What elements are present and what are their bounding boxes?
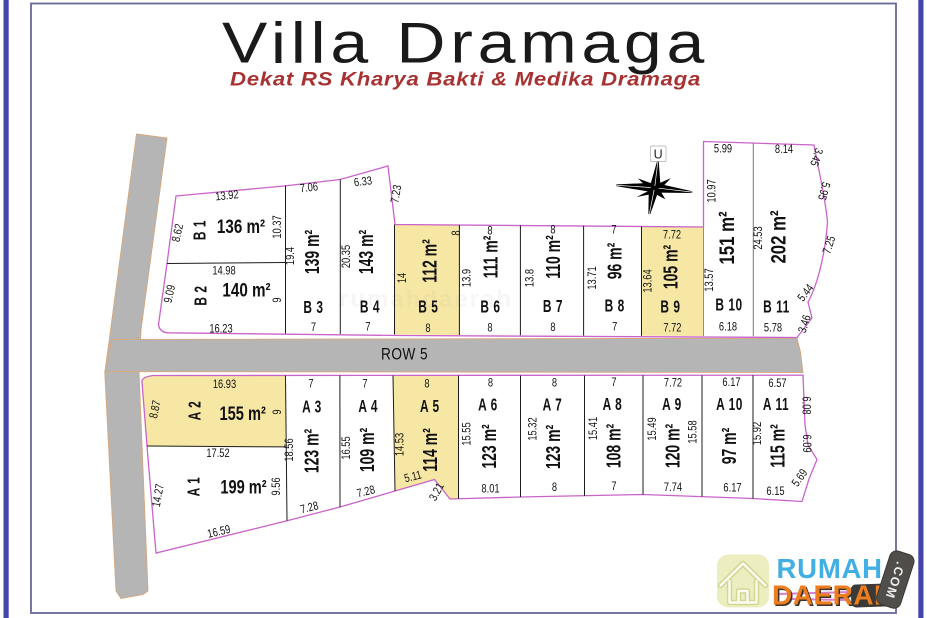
svg-text:136 m²: 136 m² <box>217 215 265 237</box>
svg-text:10.97: 10.97 <box>705 179 718 202</box>
svg-text:7: 7 <box>612 320 617 333</box>
svg-text:14.53: 14.53 <box>394 433 407 456</box>
svg-text:18.56: 18.56 <box>283 438 296 461</box>
svg-text:A 6: A 6 <box>478 395 498 415</box>
svg-text:6.18: 6.18 <box>719 320 737 333</box>
svg-text:A 8: A 8 <box>603 395 623 415</box>
svg-text:109 m²: 109 m² <box>355 428 378 473</box>
svg-text:ROW 5: ROW 5 <box>381 345 428 363</box>
svg-text:202 m²: 202 m² <box>768 210 791 264</box>
svg-text:97 m²: 97 m² <box>717 428 740 465</box>
svg-text:140 m²: 140 m² <box>222 279 270 301</box>
svg-text:13.71: 13.71 <box>586 266 599 289</box>
svg-text:14.98: 14.98 <box>212 264 235 277</box>
svg-text:8: 8 <box>487 321 492 334</box>
svg-text:24.53: 24.53 <box>752 226 765 249</box>
svg-text:7.72: 7.72 <box>663 228 681 241</box>
svg-text:B 8: B 8 <box>605 296 625 316</box>
svg-text:A 7: A 7 <box>543 395 563 415</box>
svg-text:123 m²: 123 m² <box>541 425 564 470</box>
svg-text:B 7: B 7 <box>543 297 563 317</box>
svg-text:B 5: B 5 <box>418 297 438 317</box>
svg-text:16.55: 16.55 <box>340 436 353 459</box>
svg-text:13.64: 13.64 <box>641 269 654 292</box>
svg-text:13.8: 13.8 <box>523 269 536 287</box>
svg-text:6.17: 6.17 <box>722 376 740 389</box>
svg-text:105 m²: 105 m² <box>659 245 682 290</box>
svg-text:B 6: B 6 <box>480 297 500 317</box>
svg-text:7: 7 <box>362 377 367 390</box>
svg-text:8.01: 8.01 <box>481 482 499 495</box>
svg-text:15.92: 15.92 <box>751 422 764 445</box>
svg-text:8: 8 <box>552 481 557 494</box>
svg-text:19.4: 19.4 <box>284 247 297 265</box>
svg-text:DAERAH: DAERAH <box>772 580 895 611</box>
svg-text:8: 8 <box>424 377 429 390</box>
svg-text:B 4: B 4 <box>360 297 380 317</box>
svg-text:A 11: A 11 <box>763 395 789 415</box>
svg-text:U: U <box>654 147 663 161</box>
svg-text:16.23: 16.23 <box>209 322 232 335</box>
svg-text:7.72: 7.72 <box>664 376 682 389</box>
svg-text:7: 7 <box>611 480 616 493</box>
svg-text:15.32: 15.32 <box>526 417 539 440</box>
svg-text:10.37: 10.37 <box>271 215 284 238</box>
svg-text:7.06: 7.06 <box>299 180 319 195</box>
svg-text:6.15: 6.15 <box>766 485 784 498</box>
svg-text:110 m²: 110 m² <box>541 235 564 279</box>
svg-text:A 4: A 4 <box>358 397 378 417</box>
svg-text:9.56: 9.56 <box>270 477 283 495</box>
svg-text:123 m²: 123 m² <box>477 424 500 469</box>
svg-text:14: 14 <box>396 273 409 283</box>
svg-text:B 2: B 2 <box>191 285 211 305</box>
svg-text:120 m²: 120 m² <box>661 424 684 469</box>
svg-text:112 m²: 112 m² <box>418 239 441 283</box>
svg-text:15.55: 15.55 <box>460 422 473 445</box>
svg-text:9: 9 <box>271 409 284 414</box>
svg-text:A 3: A 3 <box>302 397 322 417</box>
svg-text:6.08: 6.08 <box>799 396 812 414</box>
svg-text:7: 7 <box>611 376 616 389</box>
svg-text:123 m²: 123 m² <box>300 429 323 474</box>
svg-text:8: 8 <box>425 322 430 335</box>
svg-text:155 m²: 155 m² <box>220 402 267 425</box>
svg-text:15.58: 15.58 <box>686 420 699 443</box>
svg-text:Dekat RS Kharya Bakti & Medika: Dekat RS Kharya Bakti & Medika Dramaga <box>230 69 701 90</box>
svg-text:20.35: 20.35 <box>340 245 353 268</box>
svg-text:B 3: B 3 <box>303 298 323 318</box>
svg-text:8.14: 8.14 <box>775 143 793 156</box>
svg-text:B 10: B 10 <box>715 295 742 315</box>
svg-text:17.52: 17.52 <box>206 447 229 460</box>
svg-text:6.09: 6.09 <box>800 434 813 452</box>
svg-text:143 m²: 143 m² <box>354 230 377 275</box>
svg-text:115 m²: 115 m² <box>766 424 789 468</box>
svg-text:6.57: 6.57 <box>768 377 786 390</box>
svg-text:5.99: 5.99 <box>714 142 732 155</box>
svg-text:7: 7 <box>308 377 313 390</box>
svg-text:7: 7 <box>611 223 616 236</box>
svg-text:7: 7 <box>365 320 370 333</box>
svg-text:5.78: 5.78 <box>764 322 782 335</box>
svg-text:13.9: 13.9 <box>460 269 473 287</box>
svg-text:151 m²: 151 m² <box>716 211 739 265</box>
svg-text:7.74: 7.74 <box>664 481 682 494</box>
svg-text:6.17: 6.17 <box>723 481 741 494</box>
svg-text:A 10: A 10 <box>716 395 743 415</box>
svg-text:A 1: A 1 <box>184 477 204 497</box>
svg-text:8: 8 <box>550 223 555 236</box>
svg-text:A 2: A 2 <box>185 401 205 421</box>
svg-text:114 m²: 114 m² <box>418 428 441 472</box>
svg-text:199 m²: 199 m² <box>220 475 267 498</box>
svg-text:96 m²: 96 m² <box>603 243 626 280</box>
svg-text:111 m²: 111 m² <box>479 235 502 278</box>
svg-text:139 m²: 139 m² <box>300 230 323 275</box>
svg-text:A 5: A 5 <box>420 397 440 417</box>
svg-text:B 11: B 11 <box>763 297 790 317</box>
svg-text:13.92: 13.92 <box>215 188 240 204</box>
svg-text:15.49: 15.49 <box>646 417 659 440</box>
svg-text:8: 8 <box>450 230 463 235</box>
svg-text:108 m²: 108 m² <box>602 424 625 469</box>
svg-text:8: 8 <box>550 321 555 334</box>
svg-text:8: 8 <box>552 376 557 389</box>
svg-text:13.57: 13.57 <box>703 268 716 291</box>
svg-text:A 9: A 9 <box>662 395 682 415</box>
svg-text:B 1: B 1 <box>190 220 210 240</box>
svg-text:15.41: 15.41 <box>587 417 600 440</box>
svg-text:B 9: B 9 <box>660 297 680 317</box>
svg-text:8: 8 <box>488 376 493 389</box>
svg-text:7: 7 <box>311 321 316 334</box>
svg-text:Villa Dramaga: Villa Dramaga <box>222 11 709 75</box>
svg-text:16.93: 16.93 <box>213 378 236 391</box>
svg-text:7.72: 7.72 <box>663 321 681 334</box>
svg-text:6.33: 6.33 <box>353 174 373 189</box>
svg-text:9: 9 <box>271 297 284 302</box>
